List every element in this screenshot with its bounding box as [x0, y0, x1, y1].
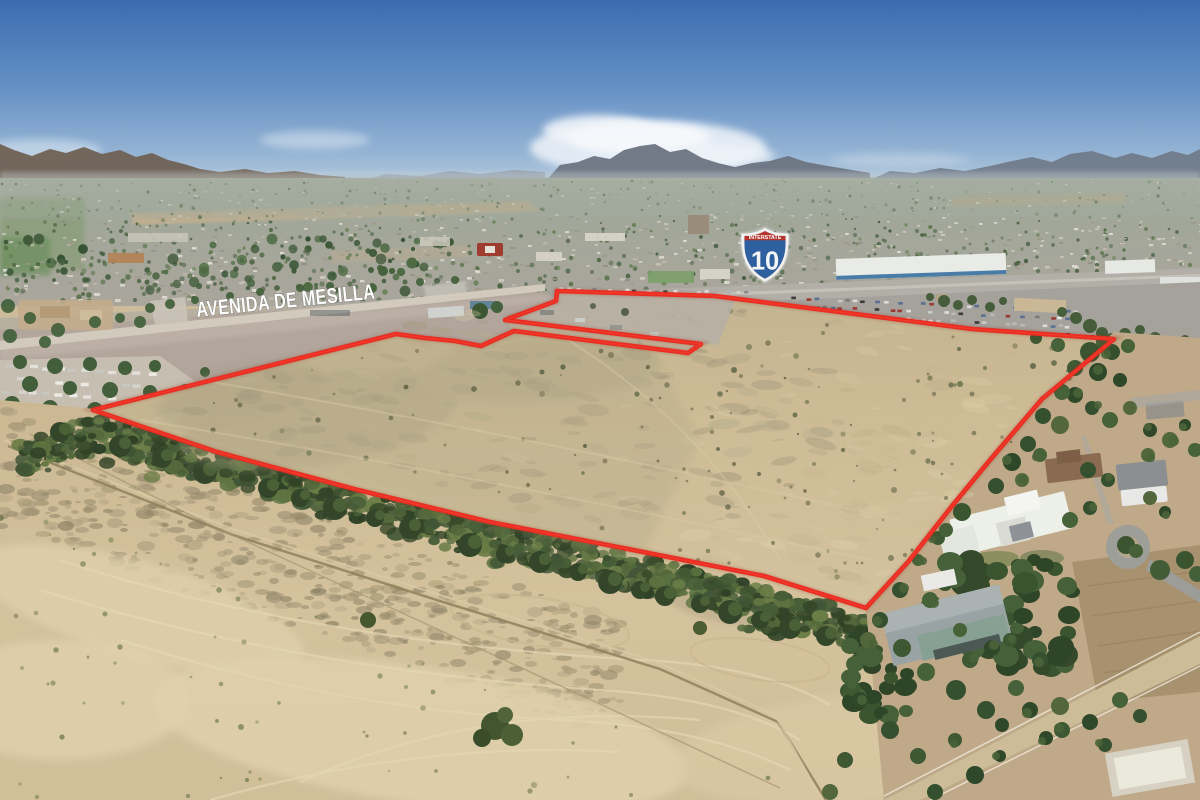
- svg-text:INTERSTATE: INTERSTATE: [749, 235, 782, 241]
- svg-text:10: 10: [751, 248, 779, 276]
